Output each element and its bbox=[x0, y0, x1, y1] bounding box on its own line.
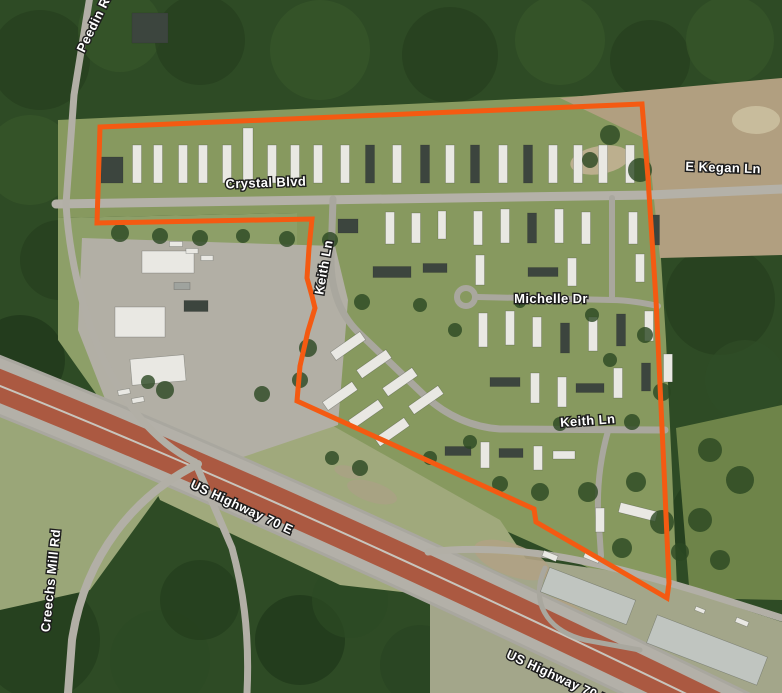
building bbox=[412, 213, 421, 243]
tree bbox=[325, 451, 339, 465]
building bbox=[170, 242, 183, 247]
tree bbox=[578, 482, 598, 502]
tree bbox=[585, 308, 599, 322]
building bbox=[614, 368, 623, 398]
tree bbox=[600, 125, 620, 145]
building bbox=[582, 212, 591, 244]
tree bbox=[637, 327, 653, 343]
building bbox=[154, 145, 163, 183]
building bbox=[574, 145, 583, 183]
building bbox=[471, 145, 480, 183]
tree bbox=[413, 298, 427, 312]
region-far-right-strip bbox=[676, 405, 782, 600]
building bbox=[558, 377, 567, 407]
tree bbox=[710, 550, 730, 570]
building bbox=[499, 145, 508, 183]
road-label-e-kegan-ln: E Kegan Ln bbox=[685, 159, 761, 177]
building bbox=[101, 157, 123, 183]
building bbox=[373, 267, 411, 278]
building bbox=[531, 373, 540, 403]
building bbox=[314, 145, 323, 183]
tree bbox=[671, 543, 689, 561]
building bbox=[479, 313, 488, 347]
tree bbox=[152, 228, 168, 244]
building bbox=[533, 317, 542, 347]
tree bbox=[141, 375, 155, 389]
tree bbox=[156, 381, 174, 399]
tree bbox=[624, 414, 640, 430]
building bbox=[201, 256, 213, 261]
building bbox=[664, 354, 673, 382]
tree bbox=[603, 353, 617, 367]
tree bbox=[279, 231, 295, 247]
building bbox=[179, 145, 188, 183]
tree bbox=[650, 510, 674, 534]
building bbox=[528, 268, 558, 277]
building bbox=[596, 508, 605, 532]
building bbox=[423, 264, 447, 273]
tree bbox=[531, 483, 549, 501]
building bbox=[446, 145, 455, 183]
building bbox=[599, 145, 608, 183]
building bbox=[130, 355, 186, 386]
building bbox=[366, 145, 375, 183]
building bbox=[243, 128, 253, 180]
building bbox=[636, 254, 645, 282]
building bbox=[132, 13, 168, 43]
building bbox=[555, 209, 564, 243]
building bbox=[549, 145, 558, 183]
satellite-map[interactable]: Peedin RdCrystal BlvdE Kegan LnKeith LnM… bbox=[0, 0, 782, 693]
building bbox=[576, 384, 604, 393]
building bbox=[438, 211, 446, 239]
map-container: Peedin RdCrystal BlvdE Kegan LnKeith LnM… bbox=[0, 0, 782, 693]
building bbox=[174, 283, 190, 290]
tree bbox=[463, 435, 477, 449]
building bbox=[553, 451, 575, 459]
tree bbox=[352, 460, 368, 476]
building bbox=[568, 258, 577, 286]
tree bbox=[111, 224, 129, 242]
building bbox=[184, 301, 208, 312]
building bbox=[561, 323, 570, 353]
tree bbox=[582, 152, 598, 168]
building bbox=[499, 449, 523, 458]
building bbox=[338, 219, 358, 233]
building bbox=[481, 442, 490, 468]
building bbox=[393, 145, 402, 183]
building bbox=[341, 145, 350, 183]
building bbox=[142, 251, 194, 273]
tree bbox=[236, 229, 250, 243]
tree bbox=[698, 438, 722, 462]
building bbox=[589, 317, 598, 351]
building bbox=[501, 209, 510, 243]
tree bbox=[626, 472, 646, 492]
building bbox=[528, 213, 537, 243]
tree bbox=[354, 294, 370, 310]
building bbox=[186, 249, 198, 254]
building bbox=[534, 446, 543, 470]
tree bbox=[612, 538, 632, 558]
tree bbox=[254, 386, 270, 402]
tree bbox=[192, 230, 208, 246]
building bbox=[617, 314, 626, 346]
building bbox=[386, 212, 395, 244]
building bbox=[490, 378, 520, 387]
building bbox=[474, 211, 483, 245]
tree bbox=[726, 466, 754, 494]
road-label-michelle-dr: Michelle Dr bbox=[514, 291, 588, 306]
tree bbox=[688, 508, 712, 532]
building bbox=[476, 255, 485, 285]
building bbox=[629, 212, 638, 244]
road-label-crystal-blvd: Crystal Blvd bbox=[225, 174, 306, 192]
building bbox=[642, 363, 651, 391]
building bbox=[506, 311, 515, 345]
building bbox=[133, 145, 142, 183]
building bbox=[524, 145, 533, 183]
building bbox=[115, 307, 165, 337]
tree bbox=[448, 323, 462, 337]
building bbox=[199, 145, 208, 183]
building bbox=[421, 145, 430, 183]
